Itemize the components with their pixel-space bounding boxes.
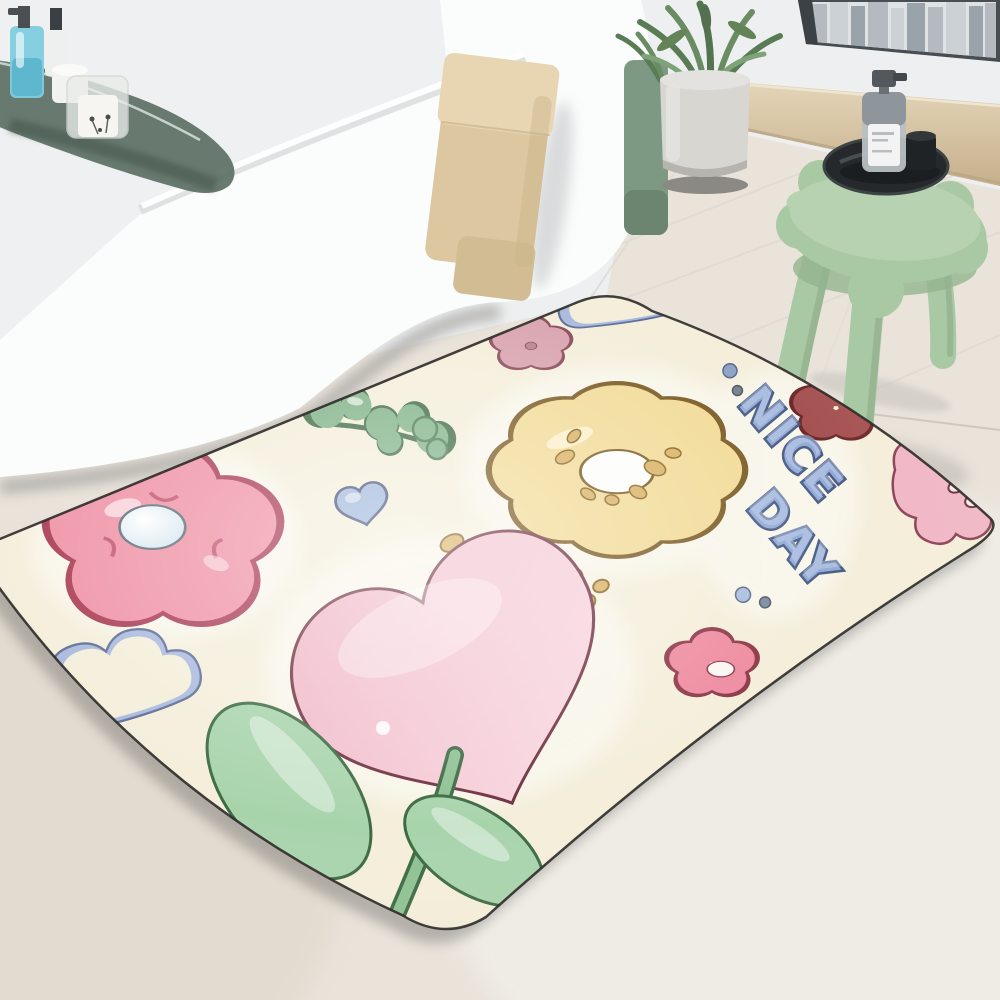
white-jar-lid	[52, 64, 88, 76]
bottle-label	[868, 124, 900, 166]
soap-bottle-highlight	[16, 32, 24, 68]
bottle-pump-head	[872, 70, 896, 87]
dark-cup-top	[906, 131, 936, 141]
scene-image: NICE NICE DAY DAY	[0, 0, 1000, 1000]
bottle-liquid-top	[862, 92, 906, 126]
candle-in-glass	[78, 95, 118, 137]
soap-pump-spout	[8, 8, 20, 15]
stool-dark-cup	[906, 131, 936, 170]
pot-base-shadow	[662, 176, 748, 194]
city-building	[969, 6, 983, 62]
pot-highlight	[666, 84, 680, 162]
city-building	[985, 3, 997, 61]
label-line	[872, 150, 892, 153]
bottle-neck	[879, 86, 889, 94]
green-container-shade	[624, 190, 668, 235]
label-line	[872, 132, 894, 135]
label-line	[872, 139, 888, 142]
bathroom-scene: NICE NICE DAY DAY	[0, 0, 1000, 1000]
bottle-pump-spout	[893, 73, 907, 81]
white-bottle-pump	[50, 8, 62, 30]
city-building	[946, 1, 966, 61]
